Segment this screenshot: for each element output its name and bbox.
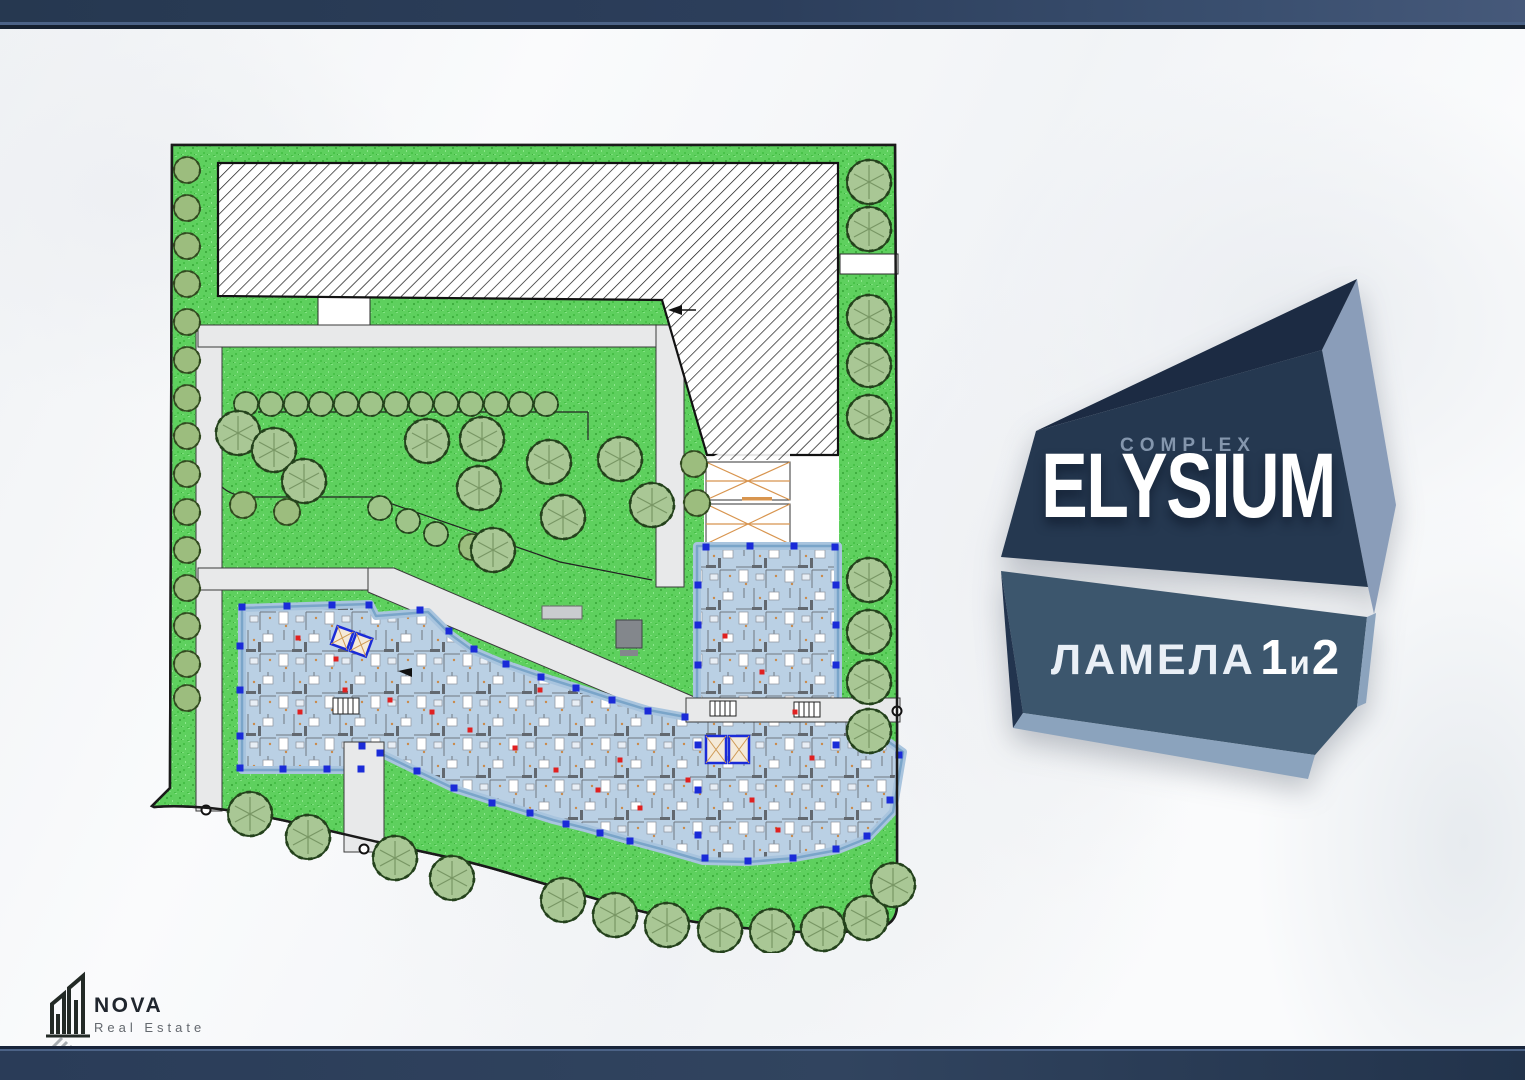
lamela-number-2: 2	[1312, 631, 1339, 685]
lamela-word: ЛАМЕЛА	[1051, 636, 1256, 684]
top-border-bar	[0, 0, 1525, 29]
perimeter-bushes-left	[174, 157, 200, 711]
poster-page: COMPLEX ELYSIUM ЛАМЕЛА 1и2 NOVA Real Est…	[0, 0, 1525, 1080]
project-name: ELYSIUM	[1028, 440, 1347, 532]
site-plan-map	[140, 118, 935, 953]
logo-brand-text: NOVA	[94, 994, 163, 1018]
lamela-label-line: ЛАМЕЛА 1и2	[1000, 630, 1390, 686]
bottom-border-bar	[0, 1046, 1525, 1080]
ramp-label-mark	[742, 497, 772, 501]
logo-tagline-text: Real Estate	[94, 1020, 205, 1035]
lamela-number-1: 1	[1260, 631, 1287, 685]
lamela-conjunction: и	[1288, 644, 1312, 681]
